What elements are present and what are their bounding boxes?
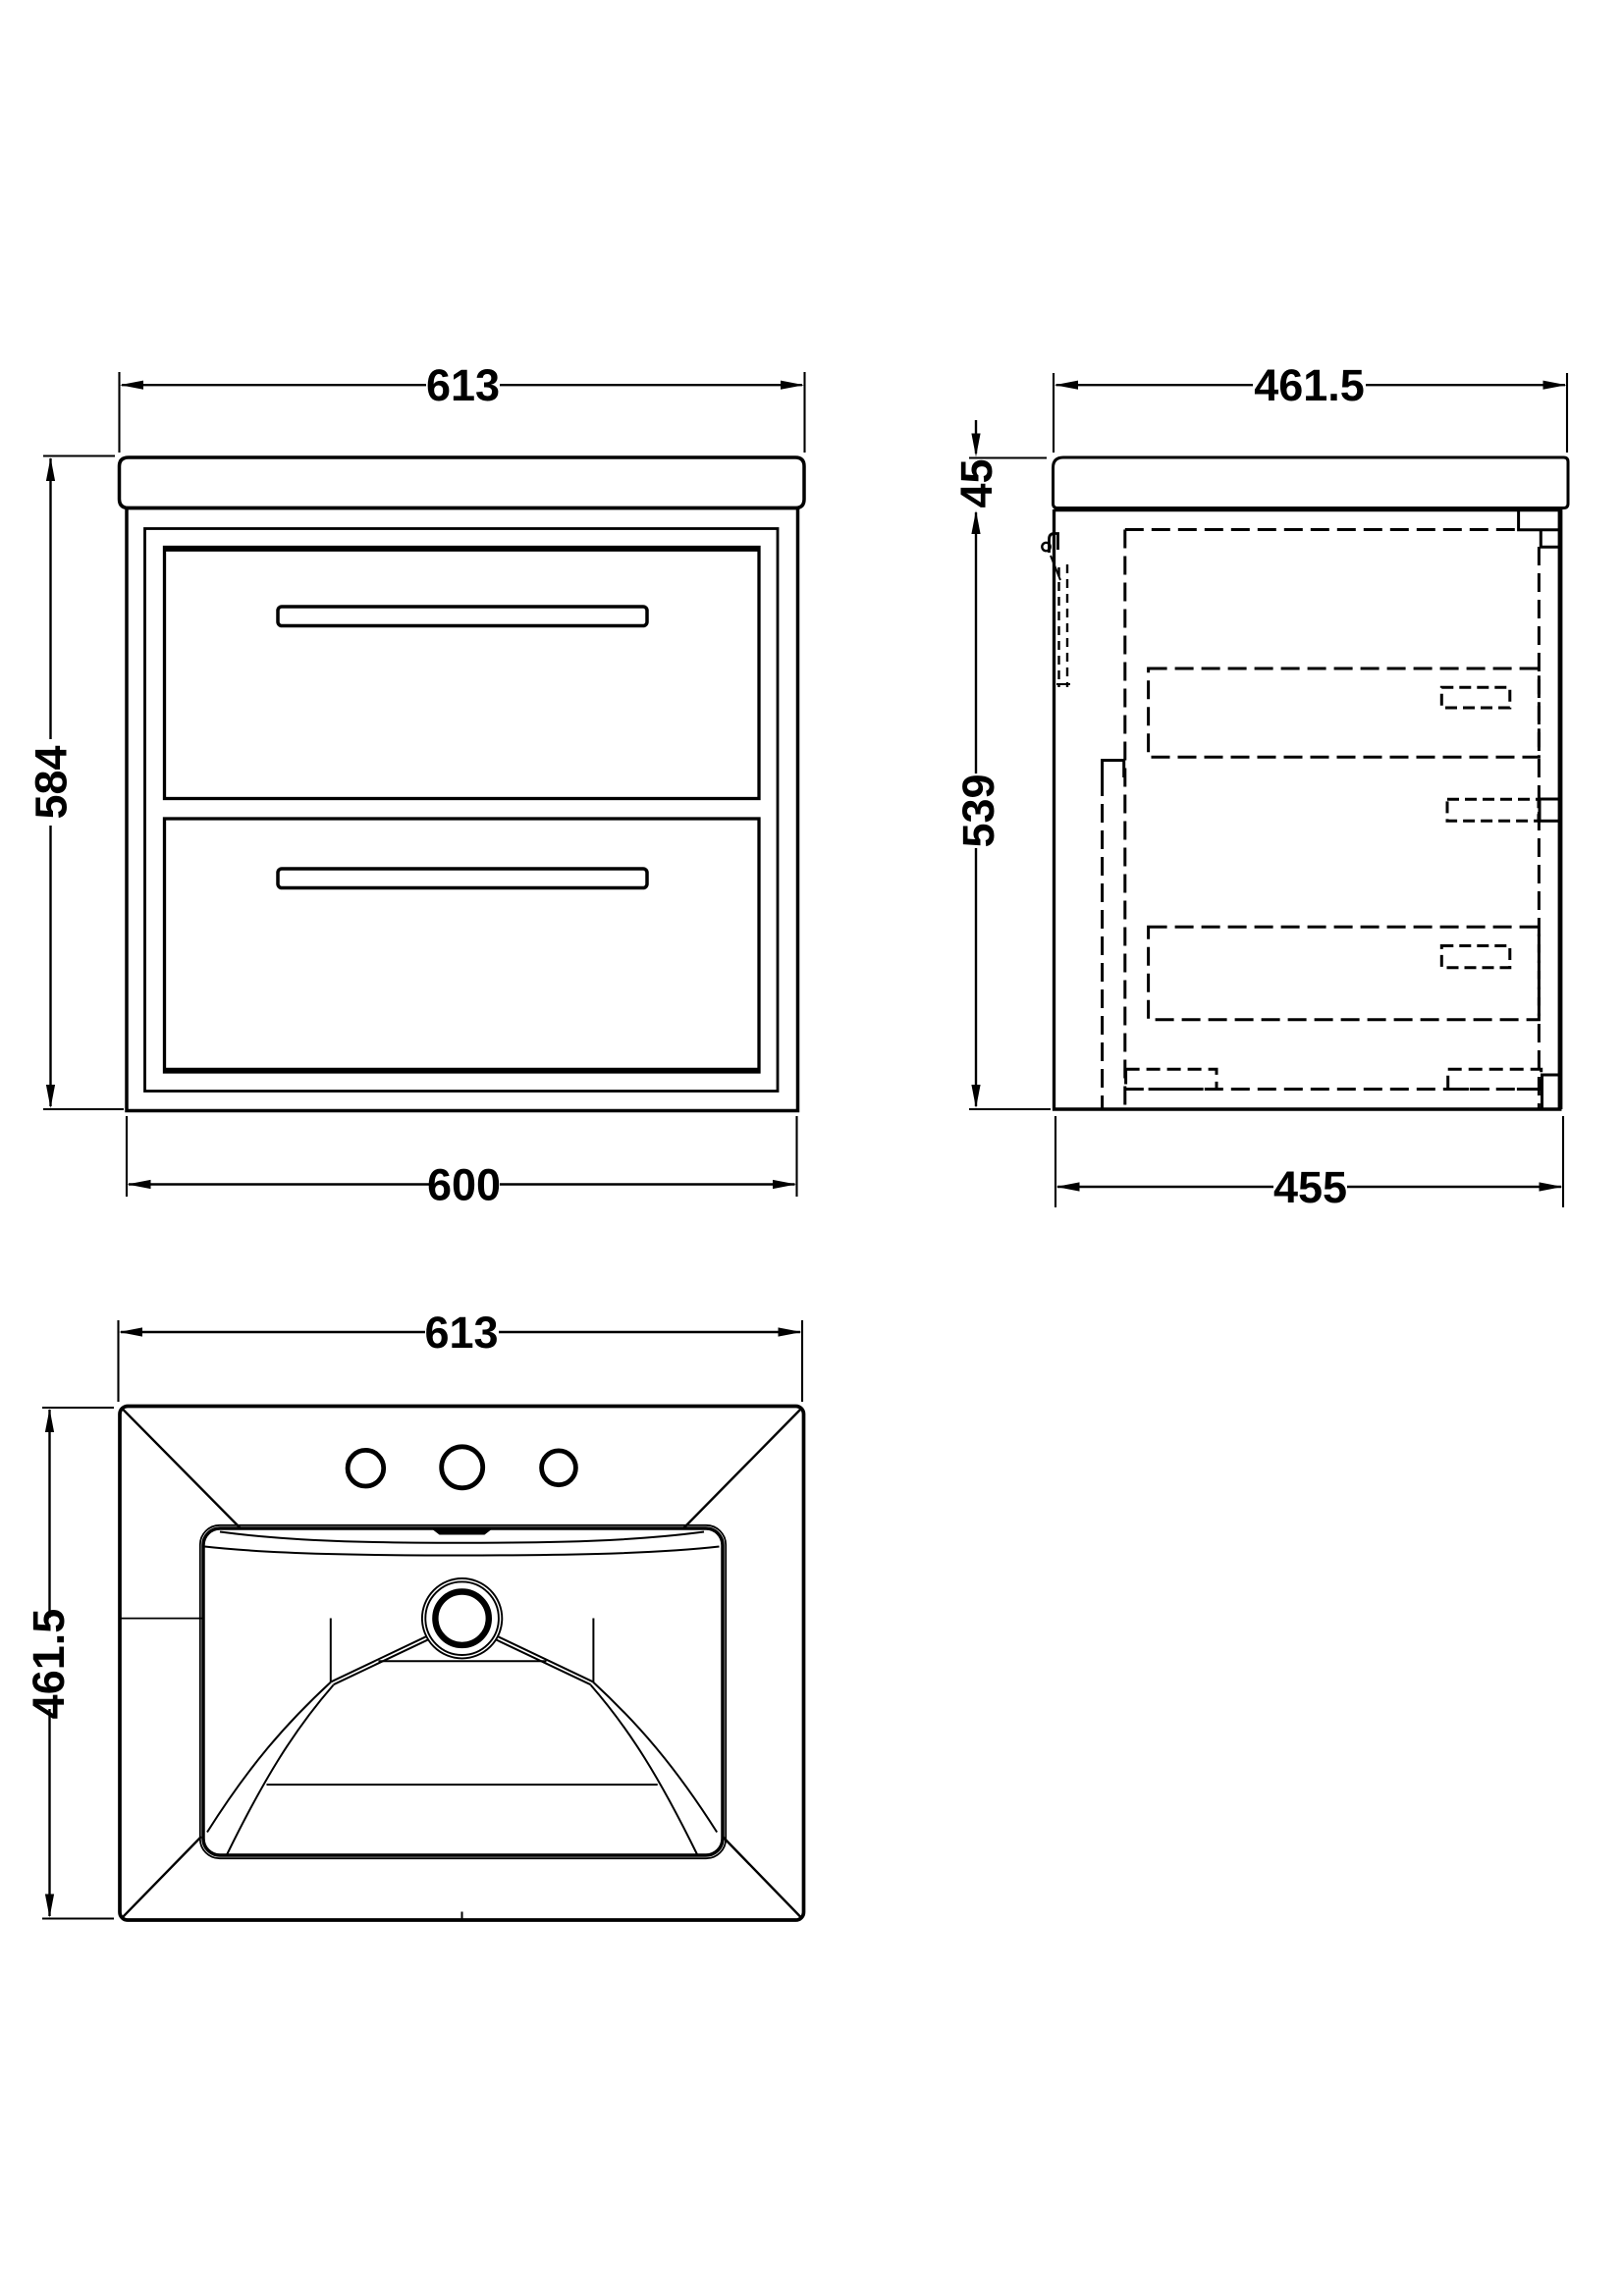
svg-text:613: 613 — [424, 1308, 498, 1358]
svg-text:455: 455 — [1273, 1162, 1347, 1212]
svg-text:600: 600 — [427, 1160, 501, 1210]
svg-text:539: 539 — [953, 774, 1003, 847]
svg-text:584: 584 — [27, 745, 77, 819]
svg-text:461.5: 461.5 — [24, 1609, 74, 1720]
svg-text:613: 613 — [426, 360, 500, 410]
svg-text:461.5: 461.5 — [1254, 360, 1365, 410]
svg-text:45: 45 — [951, 458, 1001, 507]
